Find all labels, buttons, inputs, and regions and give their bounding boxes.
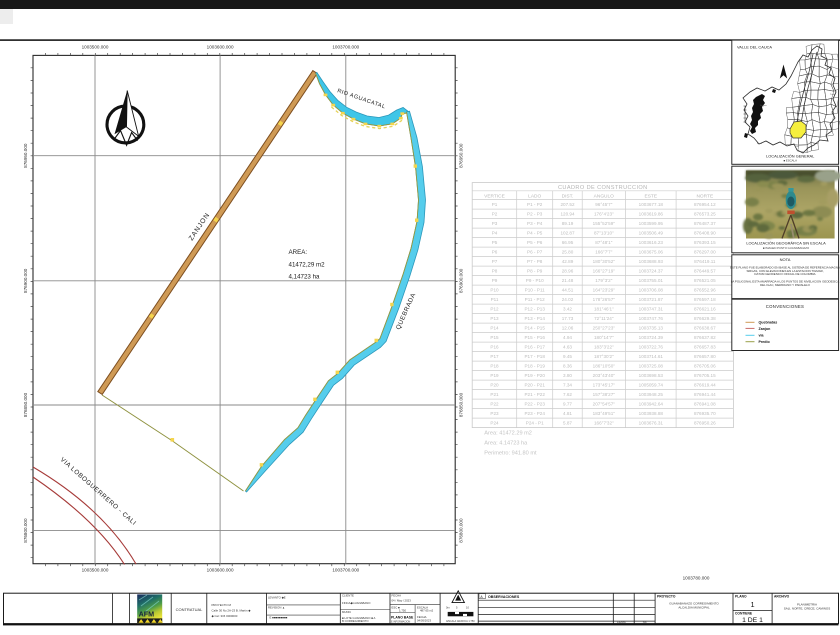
svg-text:P4 - P5: P4 - P5 xyxy=(527,231,543,236)
svg-text:P21: P21 xyxy=(490,392,499,397)
svg-text:Tulua: Tulua xyxy=(830,94,836,96)
svg-text:ANGULO: ANGULO xyxy=(594,193,615,199)
svg-text:P5: P5 xyxy=(492,240,498,245)
svg-text:876597.18: 876597.18 xyxy=(694,297,716,302)
svg-text:P5 - P6: P5 - P6 xyxy=(527,240,543,245)
svg-text:CONVENCIONES: CONVENCIONES xyxy=(766,304,804,309)
svg-text:P1 - P2: P1 - P2 xyxy=(527,202,543,207)
svg-text:876941.08: 876941.08 xyxy=(694,402,716,407)
svg-text:P2 - P3: P2 - P3 xyxy=(527,212,543,217)
svg-text:157°38'27": 157°38'27" xyxy=(593,392,616,397)
svg-text:LEVANTO ◆E: LEVANTO ◆E xyxy=(268,595,286,599)
svg-text:1003725.08: 1003725.08 xyxy=(639,364,664,369)
svg-text:876297.00: 876297.00 xyxy=(694,250,716,255)
svg-text:1003675.06: 1003675.06 xyxy=(639,250,664,255)
svg-text:1003780.000: 1003780.000 xyxy=(683,576,710,581)
svg-text:P19 - P20: P19 - P20 xyxy=(524,373,545,378)
svg-text:1003747.31: 1003747.31 xyxy=(639,307,664,312)
svg-text:166°7'7": 166°7'7" xyxy=(595,250,612,255)
svg-text:176°4'23": 176°4'23" xyxy=(594,212,614,217)
svg-text:P18: P18 xyxy=(490,364,499,369)
svg-text:AFM: AFM xyxy=(139,610,155,619)
svg-text:876521.05: 876521.05 xyxy=(694,278,716,283)
svg-text:7.34: 7.34 xyxy=(563,383,572,388)
svg-text:P22: P22 xyxy=(490,402,499,407)
svg-text:1:750: 1:750 xyxy=(399,609,406,613)
svg-text:LADO: LADO xyxy=(528,193,541,199)
svg-text:183°3'22": 183°3'22" xyxy=(594,345,614,350)
svg-text:PLANO BASE: PLANO BASE xyxy=(391,616,414,620)
svg-text:876487.37: 876487.37 xyxy=(694,221,716,226)
svg-text:P8 - P9: P8 - P9 xyxy=(527,269,543,274)
svg-text:P21 - P22: P21 - P22 xyxy=(524,392,545,397)
svg-text:876408.90: 876408.90 xyxy=(694,231,716,236)
svg-text:1003676.31: 1003676.31 xyxy=(639,421,664,426)
svg-text:P24: P24 xyxy=(490,421,499,426)
svg-text:1 DE 1: 1 DE 1 xyxy=(742,617,763,624)
svg-text:1003700.000: 1003700.000 xyxy=(332,568,359,573)
svg-text:P12 - P13: P12 - P13 xyxy=(524,307,545,312)
svg-text:876950.000: 876950.000 xyxy=(458,143,463,168)
svg-text:Dagua: Dagua xyxy=(760,105,767,107)
svg-text:1003948.25: 1003948.25 xyxy=(639,392,664,397)
svg-text:250°27'23": 250°27'23" xyxy=(593,326,616,331)
svg-text:P16: P16 xyxy=(490,345,499,350)
svg-text:4.94: 4.94 xyxy=(563,335,572,340)
svg-text:876705.15: 876705.15 xyxy=(694,373,716,378)
svg-text:96°45'7": 96°45'7" xyxy=(595,202,612,207)
svg-text:876900.000: 876900.000 xyxy=(23,268,28,293)
svg-text:Perimetro: 941.80 mt: Perimetro: 941.80 mt xyxy=(484,451,537,457)
svg-text:P9: P9 xyxy=(492,278,498,283)
svg-text:1003755.01: 1003755.01 xyxy=(639,278,664,283)
svg-text:1005059.74: 1005059.74 xyxy=(639,383,664,388)
svg-text:3.80: 3.80 xyxy=(563,373,572,378)
svg-text:5.87: 5.87 xyxy=(563,421,572,426)
svg-text:P1: P1 xyxy=(492,202,498,207)
svg-text:7.62: 7.62 xyxy=(563,392,572,397)
svg-text:OBSERVACIONES: OBSERVACIONES xyxy=(488,595,520,599)
svg-text:3.42: 3.42 xyxy=(563,307,572,312)
svg-text:AREA:: AREA: xyxy=(289,249,308,256)
svg-text:FINCA◆GUANABANO: FINCA◆GUANABANO xyxy=(342,601,371,605)
svg-text:FECHA: FECHA xyxy=(392,594,402,598)
svg-text:89.19: 89.19 xyxy=(562,221,574,226)
svg-text:4,14723 ha: 4,14723 ha xyxy=(289,274,321,281)
svg-text:NOTA: NOTA xyxy=(780,257,791,262)
svg-text:1003942.64: 1003942.64 xyxy=(639,402,664,407)
svg-text:876954.12: 876954.12 xyxy=(694,202,716,207)
svg-text:1003599.95: 1003599.95 xyxy=(639,221,664,226)
svg-text:876705.06: 876705.06 xyxy=(694,364,716,369)
svg-text:17.73: 17.73 xyxy=(562,316,574,321)
svg-text:203°43'40": 203°43'40" xyxy=(593,373,616,378)
svg-text:41472,29 m2: 41472,29 m2 xyxy=(289,261,326,268)
svg-text:P14 - P15: P14 - P15 xyxy=(524,326,545,331)
svg-text:876573.25: 876573.25 xyxy=(694,212,716,217)
svg-text:P13: P13 xyxy=(490,316,499,321)
svg-text:87°13'10": 87°13'10" xyxy=(594,231,614,236)
svg-text:PROYECTO M: PROYECTO M xyxy=(212,603,232,607)
svg-text:876638.67: 876638.67 xyxy=(694,326,716,331)
svg-text:87°48'1": 87°48'1" xyxy=(595,240,612,245)
svg-text:1003616.23: 1003616.23 xyxy=(639,240,664,245)
svg-text:Zanjon: Zanjon xyxy=(759,327,771,331)
svg-text:P2: P2 xyxy=(492,212,498,217)
svg-text:1003688.93: 1003688.93 xyxy=(639,259,664,264)
svg-text:9.77: 9.77 xyxy=(563,402,572,407)
svg-text:P4: P4 xyxy=(492,231,498,236)
svg-text:876621.16: 876621.16 xyxy=(694,307,716,312)
svg-text:12.06: 12.06 xyxy=(562,326,574,331)
svg-text:P6: P6 xyxy=(492,250,498,255)
svg-text:ESTE: ESTE xyxy=(645,193,658,199)
svg-text:876900.000: 876900.000 xyxy=(458,268,463,293)
svg-text:E ■■■■■■■■■: E ■■■■■■■■■ xyxy=(270,615,288,619)
svg-text:44.51: 44.51 xyxy=(562,288,574,293)
svg-text:PROYECTO: PROYECTO xyxy=(657,595,676,599)
svg-text:1003500.000: 1003500.000 xyxy=(82,45,109,50)
svg-text:1003724.39: 1003724.39 xyxy=(639,335,664,340)
svg-text:876657.80: 876657.80 xyxy=(694,354,716,359)
svg-text:SALI, NORTE, CRECE, CAMINOS: SALI, NORTE, CRECE, CAMINOS xyxy=(784,607,830,611)
svg-text:21.48: 21.48 xyxy=(562,278,574,283)
svg-text:876552.96: 876552.96 xyxy=(694,288,716,293)
svg-text:P15: P15 xyxy=(490,335,499,340)
svg-text:P16 - P17: P16 - P17 xyxy=(524,345,545,350)
svg-text:876393.15: 876393.15 xyxy=(694,240,716,245)
svg-text:876419.11: 876419.11 xyxy=(694,259,716,264)
svg-text:876657.83: 876657.83 xyxy=(694,345,716,350)
svg-text:ALCALDIA MUNICIPAL: ALCALDIA MUNICIPAL xyxy=(678,606,710,610)
svg-text:Cali: Cali xyxy=(795,146,799,148)
svg-text:P8: P8 xyxy=(492,269,498,274)
svg-text:E INFORMACION: E INFORMACION xyxy=(391,620,411,623)
svg-text:04/05/2023: 04/05/2023 xyxy=(417,619,431,623)
svg-text:28.96: 28.96 xyxy=(562,269,574,274)
svg-text:P14: P14 xyxy=(490,326,499,331)
svg-text:Quebradas: Quebradas xyxy=(759,321,778,325)
svg-text:1003735.13: 1003735.13 xyxy=(639,326,664,331)
svg-text:155°52'59": 155°52'59" xyxy=(593,221,616,226)
svg-text:NORTE: NORTE xyxy=(696,193,713,199)
svg-text:B CORREGIMIENTO: B CORREGIMIENTO xyxy=(342,619,369,623)
svg-text:876449.57: 876449.57 xyxy=(694,269,716,274)
svg-text:487.65 m2: 487.65 m2 xyxy=(420,609,434,613)
svg-text:876850.000: 876850.000 xyxy=(458,392,463,417)
svg-text:P7 - P8: P7 - P8 xyxy=(527,259,543,264)
svg-text:VALLE DEL CAUCA: VALLE DEL CAUCA xyxy=(737,45,772,50)
svg-text:876950.26: 876950.26 xyxy=(694,421,716,426)
svg-text:P23 - P24: P23 - P24 xyxy=(524,411,545,416)
svg-text:180°14'7": 180°14'7" xyxy=(594,335,614,340)
svg-text:No: No xyxy=(643,620,647,624)
svg-text:P18 - P19: P18 - P19 xyxy=(524,364,545,369)
svg-text:Buen: Buen xyxy=(757,143,763,145)
svg-text:P22 - P23: P22 - P23 xyxy=(524,402,545,407)
svg-text:Predio: Predio xyxy=(759,340,771,344)
svg-text:PLANO: PLANO xyxy=(735,594,747,598)
svg-text:1003706.08: 1003706.08 xyxy=(639,288,664,293)
svg-text:1003600.000: 1003600.000 xyxy=(207,45,234,50)
svg-text:P9 - P10: P9 - P10 xyxy=(526,278,544,283)
svg-text:Area: 4.14723 ha: Area: 4.14723 ha xyxy=(484,441,528,447)
svg-text:876629.38: 876629.38 xyxy=(694,316,716,321)
svg-text:72°11'24": 72°11'24" xyxy=(594,316,614,321)
svg-text:P6 - P7: P6 - P7 xyxy=(527,250,543,255)
svg-text:P17: P17 xyxy=(490,354,499,359)
svg-text:CLIENTE: CLIENTE xyxy=(342,594,354,598)
svg-text:P23: P23 xyxy=(490,411,499,416)
svg-text:REVISION ▲: REVISION ▲ xyxy=(268,605,285,609)
svg-text:CONTIENE: CONTIENE xyxy=(735,612,753,616)
svg-text:P15 - P16: P15 - P16 xyxy=(524,335,545,340)
svg-text:P7: P7 xyxy=(492,259,498,264)
svg-text:42.89: 42.89 xyxy=(562,259,574,264)
svg-text:P20 - P21: P20 - P21 xyxy=(524,383,545,388)
svg-text:DEL IGAC, MERIDIANO Y PARALELO: DEL IGAC, MERIDIANO Y PARALELO xyxy=(760,283,811,287)
svg-text:183°49'51": 183°49'51" xyxy=(593,411,616,416)
svg-text:P24 - P1: P24 - P1 xyxy=(526,421,544,426)
svg-text:164°23'29": 164°23'29" xyxy=(593,288,616,293)
svg-text:Area: 41472.29 m2: Area: 41472.29 m2 xyxy=(484,431,532,437)
svg-text:1003700.000: 1003700.000 xyxy=(332,45,359,50)
svg-text:9.45: 9.45 xyxy=(563,354,572,359)
svg-text:P3 - P4: P3 - P4 xyxy=(527,221,543,226)
svg-text:207.52: 207.52 xyxy=(560,202,574,207)
svg-text:173°45'17": 173°45'17" xyxy=(593,383,616,388)
svg-text:166°27'19": 166°27'19" xyxy=(593,269,616,274)
svg-text:181°46'1": 181°46'1" xyxy=(594,307,614,312)
svg-text:66.95: 66.95 xyxy=(562,240,574,245)
svg-text:179°3'2": 179°3'2" xyxy=(595,278,612,283)
svg-text:1003714.61: 1003714.61 xyxy=(639,354,664,359)
svg-text:P11 - P12: P11 - P12 xyxy=(525,297,546,302)
svg-text:Calle 30 No 2A-23 B. Martin ◆: Calle 30 No 2A-23 B. Martin ◆ xyxy=(212,609,252,613)
svg-text:LOCALIZACIÓN GEOGRÁFICA SIN ES: LOCALIZACIÓN GEOGRÁFICA SIN ESCALA xyxy=(746,241,826,246)
svg-text:1003677.18: 1003677.18 xyxy=(639,202,664,207)
svg-text:1003722.76: 1003722.76 xyxy=(639,345,664,350)
svg-text:DIST.: DIST. xyxy=(562,193,574,199)
svg-text:1: 1 xyxy=(750,600,754,609)
svg-text:■ IMAGEN PUNTO GUANABANAZO: ■ IMAGEN PUNTO GUANABANAZO xyxy=(763,246,810,250)
svg-text:P17 - P18: P17 - P18 xyxy=(524,354,545,359)
svg-text:876637.82: 876637.82 xyxy=(694,335,716,340)
svg-text:4.63: 4.63 xyxy=(563,345,572,350)
svg-text:P10 - P11: P10 - P11 xyxy=(525,288,546,293)
svg-text:FIRMA: FIRMA xyxy=(617,620,626,624)
svg-text:CONTRATUAL: CONTRATUAL xyxy=(176,607,204,612)
svg-text:CUADRO DE CONSTRUCCION: CUADRO DE CONSTRUCCION xyxy=(558,185,648,191)
svg-text:876935.70: 876935.70 xyxy=(694,411,716,416)
svg-text:1003506.49: 1003506.49 xyxy=(639,231,664,236)
svg-text:876850.000: 876850.000 xyxy=(23,392,28,417)
svg-text:1003938.88: 1003938.88 xyxy=(639,411,664,416)
svg-text:1003747.76: 1003747.76 xyxy=(639,316,664,321)
svg-text:207°54'57": 207°54'57" xyxy=(593,402,616,407)
svg-text:04 / May / 2023: 04 / May / 2023 xyxy=(392,599,412,603)
svg-text:876941.44: 876941.44 xyxy=(694,392,716,397)
svg-text:180°30'52": 180°30'52" xyxy=(593,259,616,264)
svg-text:876800.000: 876800.000 xyxy=(23,518,28,543)
svg-text:166°7'32": 166°7'32" xyxy=(594,421,614,426)
svg-text:1003698.53: 1003698.53 xyxy=(639,373,664,378)
svg-text:876800.000: 876800.000 xyxy=(458,518,463,543)
svg-text:8.36: 8.36 xyxy=(563,364,572,369)
svg-text:1003600.000: 1003600.000 xyxy=(207,568,234,573)
svg-text:186°10'50": 186°10'50" xyxy=(593,364,616,369)
svg-text:P11: P11 xyxy=(491,297,499,302)
svg-text:876619.44: 876619.44 xyxy=(694,383,716,388)
svg-text:P20: P20 xyxy=(490,383,499,388)
svg-text:P3: P3 xyxy=(492,221,498,226)
svg-text:1003721.87: 1003721.87 xyxy=(639,297,664,302)
svg-text:178°26'57": 178°26'57" xyxy=(593,297,616,302)
svg-text:120.94: 120.94 xyxy=(560,212,574,217)
svg-text:MUNIC: MUNIC xyxy=(342,610,351,614)
svg-text:187°30'2": 187°30'2" xyxy=(594,354,614,359)
svg-text:ESCALA GRAFICA 1:750: ESCALA GRAFICA 1:750 xyxy=(446,620,475,623)
svg-text:P12: P12 xyxy=(490,307,499,312)
svg-text:1003619.86: 1003619.86 xyxy=(639,212,664,217)
svg-text:■ ESCALA: ■ ESCALA xyxy=(783,159,797,163)
svg-text:4.81: 4.81 xyxy=(563,411,572,416)
svg-text:P19: P19 xyxy=(490,373,499,378)
svg-text:DATUM GEODESICO OFICIAL DE COL: DATUM GEODESICO OFICIAL DE COLOMBIA xyxy=(754,272,815,276)
svg-text:102.87: 102.87 xyxy=(560,231,574,236)
svg-text:◆ Cel: 315 0000000: ◆ Cel: 315 0000000 xyxy=(212,614,238,618)
svg-text:P10: P10 xyxy=(490,288,499,293)
svg-text:VERTICE: VERTICE xyxy=(484,193,505,199)
svg-text:0m: 0m xyxy=(446,606,450,610)
svg-text:1003724.37: 1003724.37 xyxy=(639,269,664,274)
svg-text:24.02: 24.02 xyxy=(562,297,574,302)
svg-text:25.80: 25.80 xyxy=(562,250,574,255)
svg-text:1003500.000: 1003500.000 xyxy=(82,568,109,573)
svg-text:ARCHIVO: ARCHIVO xyxy=(774,594,790,598)
svg-text:876950.000: 876950.000 xyxy=(23,143,28,168)
svg-text:P13 - P14: P13 - P14 xyxy=(524,316,545,321)
